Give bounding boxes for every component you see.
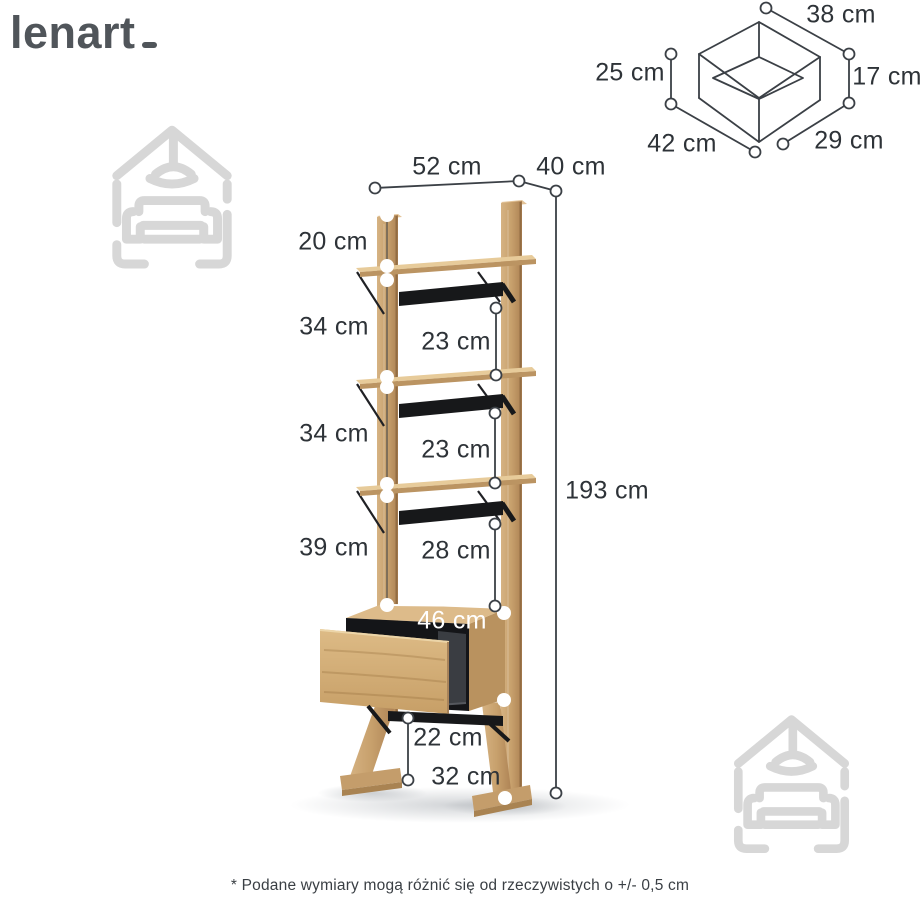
dimension-sheet: lenart: [0, 0, 920, 912]
dim-label-top-overhang: 20 cm: [298, 230, 368, 255]
drawer-front: [320, 629, 449, 714]
tolerance-footnote: * Podane wymiary mogą różnić się od rzec…: [0, 877, 920, 895]
dim-label-box-side-depth: 29 cm: [814, 129, 884, 154]
dim-label-box-bottom-width: 42 cm: [647, 132, 717, 157]
dim-label-gap-upper: 34 cm: [299, 315, 369, 340]
dim-label-box-right-height: 17 cm: [852, 65, 920, 90]
dim-label-depth-top: 40 cm: [536, 155, 606, 180]
metal-strap-1: [399, 282, 503, 306]
dim-label-clearance-lower: 28 cm: [421, 539, 491, 564]
watermark-house-bottom-right: [738, 720, 844, 849]
dim-label-width-top: 52 cm: [412, 155, 482, 180]
box-line-drawing: [699, 22, 820, 142]
dim-label-base-clearance: 22 cm: [413, 726, 483, 751]
dim-label-drawer-width: 46 cm: [417, 609, 487, 634]
metal-strap-2: [399, 394, 503, 418]
dim-label-clearance-upper: 23 cm: [421, 330, 491, 355]
watermark-house-top-left: [117, 130, 227, 264]
metal-strap-3: [399, 501, 503, 525]
dim-label-box-left-height: 25 cm: [595, 61, 665, 86]
dim-label-foot-depth: 32 cm: [431, 765, 501, 790]
dim-label-total-height: 193 cm: [565, 479, 649, 504]
dim-label-gap-middle: 34 cm: [299, 422, 369, 447]
dim-label-gap-lower: 39 cm: [299, 536, 369, 561]
dim-label-clearance-middle: 23 cm: [421, 438, 491, 463]
dim-label-box-top-width: 38 cm: [806, 3, 876, 28]
